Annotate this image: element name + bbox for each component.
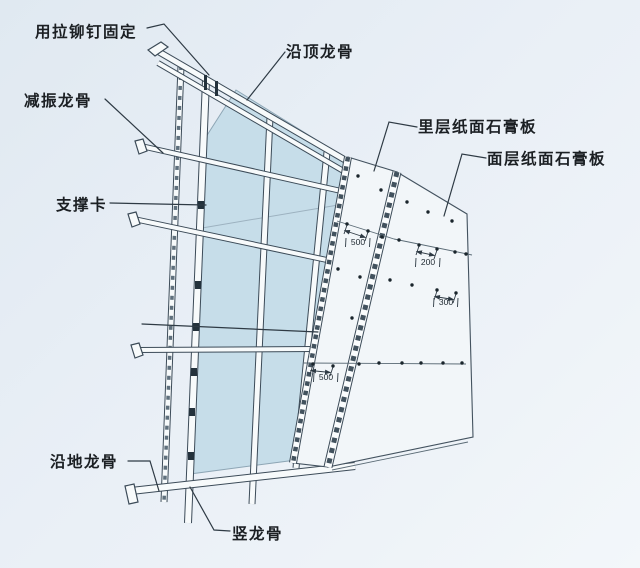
channel-3-endcap	[131, 343, 143, 358]
face-board-screw-dot	[419, 361, 422, 364]
label-floor-track: 沿地龙骨	[50, 452, 118, 471]
face-board-screw-dot	[450, 219, 453, 222]
face-board-screw-dot	[405, 200, 408, 203]
dimension-value: 500	[351, 237, 365, 247]
construction-diagram-page: 500200300500 用拉铆钉固定沿顶龙骨减振龙骨支撑卡里层纸面石膏板面层纸…	[0, 0, 640, 568]
face-board-screw-dot	[357, 362, 360, 365]
face-board-screw-dot	[400, 361, 403, 364]
stud-a	[164, 66, 181, 502]
face-board-screw-dot	[441, 361, 444, 364]
channel-1-endcap	[135, 139, 147, 154]
leader-inner-gypsum-board	[374, 122, 417, 171]
dimension-value: 500	[319, 372, 333, 382]
leader-support-clip	[110, 203, 206, 205]
face-board-screw-dot	[464, 252, 467, 255]
partition-wall-diagram: 500200300500 用拉铆钉固定沿顶龙骨减振龙骨支撑卡里层纸面石膏板面层纸…	[0, 0, 640, 568]
face-board-screw-dot	[388, 278, 391, 281]
face-board-screw-dot	[380, 235, 383, 238]
face-board-screw-dot	[410, 283, 413, 286]
face-board-screw-dot	[453, 250, 456, 253]
face-board-screw-dot	[426, 210, 429, 213]
dimension-value: 300	[439, 297, 453, 307]
label-face-gypsum-board: 面层纸面石膏板	[487, 149, 606, 168]
rivet-mark	[204, 75, 207, 90]
leader-vertical-stud	[190, 487, 230, 531]
rivet-mark	[215, 81, 218, 96]
channel-2-endcap	[128, 212, 140, 227]
label-support-clip: 支撑卡	[55, 195, 107, 214]
inner-board-screw-dot	[336, 267, 339, 270]
face-board-screw-dot	[460, 361, 463, 364]
label-resilient-channel: 减振龙骨	[24, 91, 92, 110]
floor-track-member	[125, 466, 355, 504]
leader-resilient-channel	[105, 99, 163, 153]
face-board-screw-dot	[397, 238, 400, 241]
label-inner-gypsum-board: 里层纸面石膏板	[418, 117, 537, 136]
leader-top-track	[247, 52, 285, 100]
inner-board-screw-dot	[358, 275, 361, 278]
inner-board-screw-dot	[350, 316, 353, 319]
face-board-screw-dot	[379, 188, 382, 191]
inner-board-screw-dot	[356, 174, 359, 177]
label-top-track: 沿顶龙骨	[286, 42, 354, 61]
dimension-value: 200	[421, 257, 435, 267]
label-vertical-stud: 竖龙骨	[232, 524, 283, 543]
face-board-screw-dot	[377, 361, 380, 364]
label-rivet-fix: 用拉铆钉固定	[35, 22, 137, 41]
